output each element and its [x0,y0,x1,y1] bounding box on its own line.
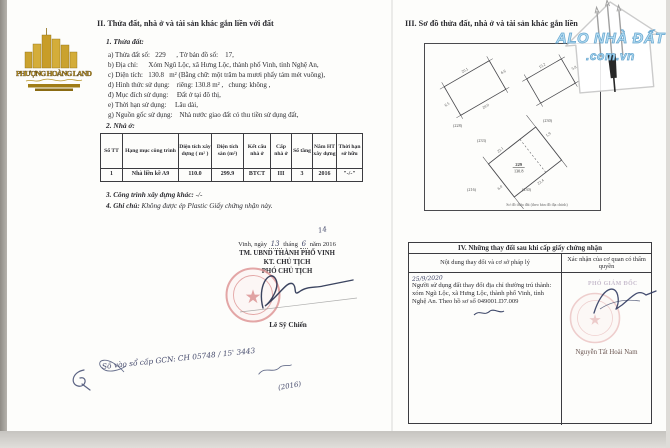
section4-title: IV. Những thay đổi sau khi cấp giấy chứn… [409,243,651,254]
note-value: Không được ép Plastic Giấy chứng nhận nà… [142,202,273,210]
other-construction-value: -/- [196,191,203,199]
parcel-b-label: (230) [543,118,553,123]
phuong-hoang-land-logo: PHƯỢNG HOÀNG LAND [12,18,96,92]
plot-line-b: b) Địa chỉ: Xóm Ngũ Lộc, xã Hưng Lộc, th… [108,60,390,70]
page-fold-seam [391,0,393,431]
section4-col2-header: Xác nhận của cơ quan có thẩm quyền [562,254,651,272]
signing-year: năm 2016 [310,241,336,248]
signing-month-label: tháng [283,241,298,248]
handwritten-page-number: 14 [317,225,327,235]
cell-dtxd: 110.0 [179,169,212,182]
dim-a-bottom: 20.0 [481,102,490,110]
cell-sotang: 3 [292,169,313,182]
neighbor-label-2: (216) [467,187,477,192]
signing-org: TM. UBND THÀNH PHỐ VINH [232,250,342,257]
col-header-namht: Năm HT xây dựng [313,134,337,169]
entry-initials-squiggle [472,307,506,319]
parcel-main-number: 229 [515,162,522,167]
section4-header-row: Nội dung thay đổi và cơ sở pháp lý Xác n… [409,254,651,273]
neighbor-label-3: (230) [522,187,532,192]
neighbor-label-1: (233) [477,138,487,143]
col-header-sotang: Số tầng [292,134,313,169]
plot-heading: 1. Thửa đất: [106,37,144,46]
logo-tagline-script [26,79,82,81]
dim-c-right: 5.9 [545,131,552,138]
plot-line-a: a) Thửa đất số: 229 , Tờ bản đồ số: 17, [108,50,390,60]
signing-date-line: Vinh, ngày 13 tháng 6 năm 2016 [228,240,346,248]
cell-hangmuc: Nhà liền kề A9 [123,169,179,182]
parcel-a-label: (228) [453,123,463,128]
handwritten-month: 6 [300,240,308,249]
confirmation-cell: PHÓ GIÁM ĐỐC Nguyễn Tất Hoài Nam [562,273,651,425]
plot-line-dd: đ) Mục đích sử dụng: Đất ở tại đô thị, [108,90,390,100]
section4-table: IV. Những thay đổi sau khi cấp giấy chứn… [408,242,652,424]
house-table-row: 1 Nhà liền kề A9 110.0 299.9 BTCT III 3 … [101,169,363,182]
signing-place: Vinh, ngày [238,241,267,248]
entry-text: Người sử dụng đất thay đổi địa chỉ thườn… [412,282,558,307]
dim-c-left: 6.0 [496,184,503,191]
col-header-dtsan: Diện tích sàn (m²) [212,134,244,169]
col-header-dtxd: Diện tích xây dựng ( m² ) [179,134,212,169]
signer-name: Lê Sỹ Chiến [240,321,336,329]
photo-edge-left [0,0,7,448]
note-line: 4. Ghi chú: Không được ép Plastic Giấy c… [106,202,273,210]
signature-registry-director [576,279,658,321]
dim-a-right: 6.6 [500,68,507,75]
col-header-ketcau: Kết cấu nhà ở [244,134,271,169]
house-table-header-row: Số TT Hạng mục công trình Diện tích xây … [101,134,363,169]
signing-kt-title: KT. CHỦ TỊCH [232,259,342,266]
col-header-capnha: Cấp nhà ở [271,134,292,169]
col-header-hangmuc: Hạng mục công trình [123,134,179,169]
cell-namht: 2016 [313,169,337,182]
cell-stt: 1 [101,169,123,182]
change-entry-cell: 25/9/2020 Người sử dụng đất thay đổi địa… [409,273,562,425]
registry-year: (2016) [277,380,301,392]
note-label: 4. Ghi chú: [106,202,140,210]
plot-line-c: c) Diện tích: 130.8 m² (Bằng chữ: một tr… [108,70,390,80]
handwritten-day: 13 [269,240,282,249]
cell-thoihan: "-/-" [337,169,363,182]
plot-line-d: d) Hình thức sử dụng: riêng: 130.8 m² , … [108,80,390,90]
photo-edge-bottom [0,431,670,448]
approver-name: Nguyễn Tất Hoài Nam [562,349,651,356]
gold-skyline-icon [25,28,77,68]
photo-edge-right [666,0,670,448]
logo-brand-text: PHƯỢNG HOÀNG LAND [16,68,93,78]
col-header-stt: Số TT [101,134,123,169]
section4-col1-header: Nội dung thay đổi và cơ sở pháp lý [409,254,562,272]
registry-note-squiggle [255,359,295,378]
signature-chairman [235,268,360,316]
alo-brand-text: ALO NHÀ ĐẤT [556,30,665,47]
plot-line-e: e) Thời hạn sử dụng: Lâu dài, [108,100,390,110]
plot-line-g: g) Nguồn gốc sử dụng: Nhà nước giao đất … [108,110,390,120]
alo-domain-text: .com.vn [586,49,635,63]
scanned-certificate-page: II. Thửa đất, nhà ở và tài sản khác gắn … [0,0,670,448]
logo-base-bar [28,84,80,88]
house-table: Số TT Hạng mục công trình Diện tích xây … [100,133,363,182]
plot-details: a) Thửa đất số: 229 , Tờ bản đồ số: 17, … [108,50,390,120]
parcel-main-area: 130.8 [514,168,523,173]
dim-a-left: 6.5 [443,101,450,108]
other-construction-label: 3. Công trình xây dựng khác: [106,191,194,199]
logo-base-bar2 [35,89,73,92]
cell-capnha: III [271,169,292,182]
section2-title: II. Thửa đất, nhà ở và tài sản khác gắn … [97,19,274,28]
section4-body-row: 25/9/2020 Người sử dụng đất thay đổi địa… [409,273,651,425]
house-heading: 2. Nhà ở: [106,121,135,130]
diagram-caption: Sơ đồ thửa đất (theo bản đồ địa chính) [506,202,568,207]
col-header-thoihan: Thời hạn sở hữu [337,134,363,169]
cell-ketcau: BTCT [244,169,271,182]
parcel-a-outline [444,61,506,116]
other-construction-line: 3. Công trình xây dựng khác: -/- [106,191,202,199]
cell-dtsan: 299.9 [212,169,244,182]
